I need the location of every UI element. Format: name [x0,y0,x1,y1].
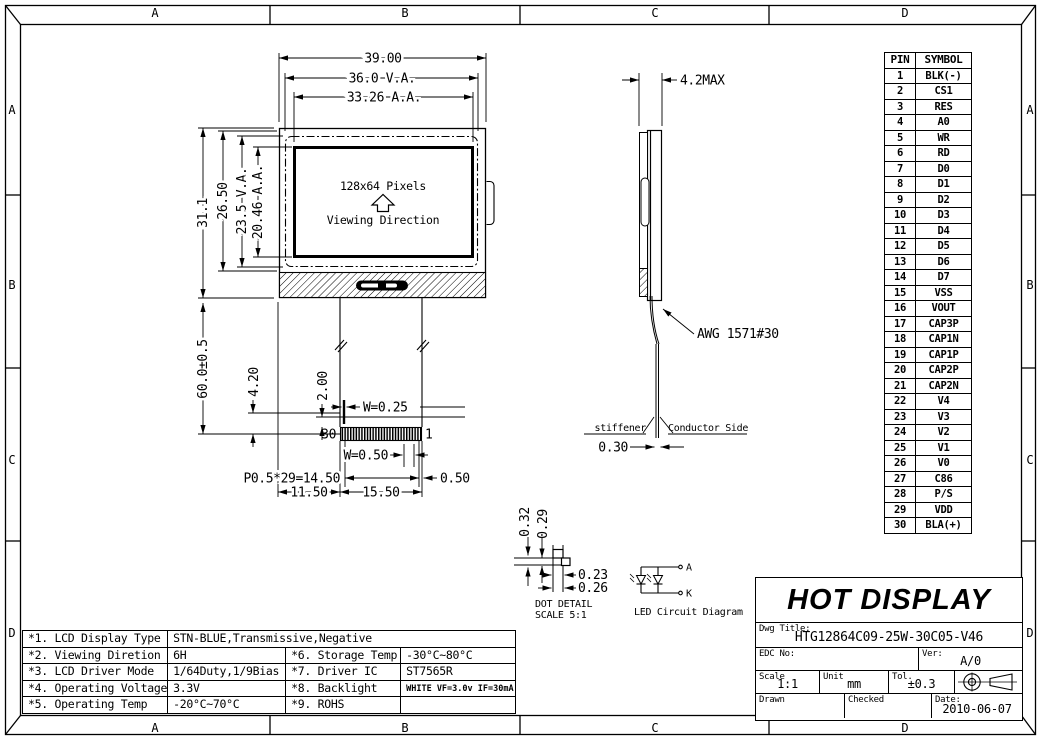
pin-cell: BLA(+) [916,518,972,534]
pin-row: 7D0 [885,161,972,177]
pin-cell: P/S [916,487,972,503]
spec-cell: *4. Operating Voltage [23,680,168,697]
zone-label: A [149,6,161,20]
pin-cell: VSS [916,285,972,301]
pin-row: 23V3 [885,409,972,425]
dot-detail [514,537,576,592]
pin-row: 13D6 [885,254,972,270]
dim-height-aa: 20.46 A.A. [251,165,266,239]
spec-cell: *5. Operating Temp [23,697,168,714]
dim-height-inner: 26.50 [216,182,231,219]
pin-row: 1BLK(-) [885,68,972,84]
spec-cell: ST7565R [401,664,516,681]
led-symbol [654,576,663,585]
pin-cell: 25 [885,440,916,456]
spec-cell: 6H [168,647,286,664]
pin-cell: CAP2N [916,378,972,394]
spec-row: *5. Operating Temp-20°C~70°C*9. ROHS [23,697,516,714]
pin-row: 25V1 [885,440,972,456]
spec-cell: -30°C~80°C [401,647,516,664]
spec-row: *3. LCD Driver Mode1/64Duty,1/9Bias*7. D… [23,664,516,681]
spec-cell: *3. LCD Driver Mode [23,664,168,681]
pin-cell: 8 [885,177,916,193]
zone-label: C [649,721,661,735]
pin-row: 26V0 [885,456,972,472]
pin-row: 29VDD [885,502,972,518]
zone-label: D [6,626,18,640]
drawing-sheet: 128x64 Pixels Viewing Direction [0,0,1041,740]
spec-table: *1. LCD Display TypeSTN-BLUE,Transmissiv… [22,630,516,714]
pin-cell: 1 [885,68,916,84]
spec-cell: 3.3V [168,680,286,697]
spec-cell: *2. Viewing Diretion [23,647,168,664]
pin-row: 15VSS [885,285,972,301]
dwg-title-value: HTG12864C09-25W-30C05-V46 [756,630,1022,645]
dim-dot-v2: 0.29 [536,509,551,539]
pin-cell: 24 [885,425,916,441]
pin-row: 12D5 [885,239,972,255]
pin-row: 20CAP2P [885,363,972,379]
company-name: HOT DISPLAY [756,578,1022,623]
pin-cell: 26 [885,456,916,472]
pin-cell: V3 [916,409,972,425]
symbol-header: SYMBOL [916,53,972,69]
dim-width-aa: 33.26 A.A. [347,91,421,106]
pin-cell: V0 [916,456,972,472]
projection-symbol-icon [955,671,1021,693]
viewing-direction-label: Viewing Direction [327,213,440,227]
dim-dot-v1: 0.32 [518,507,533,537]
pin-cell: D0 [916,161,972,177]
pin-cell: 23 [885,409,916,425]
pin-cell: RD [916,146,972,162]
pin-cell: CAP1N [916,332,972,348]
pin-cell: 2 [885,84,916,100]
pin-cell: V1 [916,440,972,456]
scale-value: 1:1 [756,677,819,691]
edc-ver-row: EDC No: Ver: A/0 [756,647,1022,670]
pin-row: 28P/S [885,487,972,503]
dim-thickness: 4.2MAX [680,74,725,89]
pin-row: 2CS1 [885,84,972,100]
pin-row: 22V4 [885,394,972,410]
pin-row: 27C86 [885,471,972,487]
pin-cell: D1 [916,177,972,193]
pin-cell: D7 [916,270,972,286]
zone-label: A [149,721,161,735]
pin-row: 9D2 [885,192,972,208]
ver-value: A/0 [919,654,1022,668]
pin-cell: D6 [916,254,972,270]
dim-height-total: 31.1 [196,198,211,228]
pin-cell: 9 [885,192,916,208]
zone-label: A [1024,103,1036,117]
pin-row: 18CAP1N [885,332,972,348]
pin-row: 11D4 [885,223,972,239]
pin-cell: CAP3P [916,316,972,332]
stiffener-label: stiffener [595,423,647,434]
edc-no-label: EDC No: [759,649,795,659]
pin-row: 19CAP1P [885,347,972,363]
pin-cell: 18 [885,332,916,348]
pin-cell: CAP1P [916,347,972,363]
led-symbol [637,576,646,585]
dot-detail-scale: SCALE 5:1 [535,610,587,621]
dim-trace-width: W=0.25 [363,401,408,416]
pin-cell: VDD [916,502,972,518]
pin-cell: 14 [885,270,916,286]
pin-table-header: PIN SYMBOL [885,53,972,69]
spec-cell: *1. LCD Display Type [23,631,168,648]
pin-row: 3RES [885,99,972,115]
pin-row: 10D3 [885,208,972,224]
dot-square [562,558,571,566]
spec-cell: -20°C~70°C [168,697,286,714]
conductor-side-label: Conductor Side [668,423,748,434]
date-value: 2010-06-07 [932,702,1022,716]
zone-label: D [1024,626,1036,640]
pin-cell: 30 [885,518,916,534]
screen-pixels-label: 128x64 Pixels [340,179,426,193]
pin-row: 24V2 [885,425,972,441]
pin-cell: A0 [916,115,972,131]
zone-label: B [399,721,411,735]
pin-cell: 11 [885,223,916,239]
dim-pitch: P0.5*29=14.50 [243,472,340,487]
zone-label: C [649,6,661,20]
pin-cell: 27 [885,471,916,487]
dim-dot-h2: 0.26 [578,581,608,596]
pin-number-30: 30 [321,428,336,443]
led-circuit [630,565,682,595]
led-anode-label: A [686,563,692,574]
pin-cell: 29 [885,502,916,518]
pin-cell: D3 [916,208,972,224]
spec-cell: *9. ROHS [286,697,401,714]
spec-cell [401,697,516,714]
pin-row: 16VOUT [885,301,972,317]
scale-unit-tol-row: Scale 1:1 Unit mm Tol. ±0.3 [756,670,1022,693]
pin-cell: 22 [885,394,916,410]
dim-tail-end: 2.00 [316,371,331,401]
pin-cell: 21 [885,378,916,394]
pin-number-1: 1 [425,428,432,443]
pin-cell: D5 [916,239,972,255]
dim-width-va: 36.0 V.A. [349,72,416,87]
dwg-title-row: Dwg Title: HTG12864C09-25W-30C05-V46 [756,622,1022,647]
dim-fpc-width: 15.50 [362,486,399,501]
dot-detail-title: DOT DETAIL [535,599,592,610]
side-view-dimensions [584,73,747,447]
pin-cell: 20 [885,363,916,379]
pin-cell: 13 [885,254,916,270]
pin-cell: CS1 [916,84,972,100]
spec-cell: *6. Storage Temp [286,647,401,664]
drawn-checked-date-row: Drawn Checked Date: 2010-06-07 [756,693,1022,718]
pin-cell: 28 [885,487,916,503]
pin-row: 17CAP3P [885,316,972,332]
pin-row: 14D7 [885,270,972,286]
dim-left-offset: 11.50 [290,486,327,501]
pin-cell: V2 [916,425,972,441]
dim-height-va: 23.5 V.A. [235,168,250,235]
wire-gauge-label: AWG 1571#30 [697,327,779,342]
zone-label: B [1024,278,1036,292]
pin-cell: 19 [885,347,916,363]
spec-row: *2. Viewing Diretion6H*6. Storage Temp-3… [23,647,516,664]
pin-cell: BLK(-) [916,68,972,84]
zone-label: B [399,6,411,20]
dim-pad-width: W=0.50 [343,449,388,464]
pin-row: 5WR [885,130,972,146]
pin-cell: 6 [885,146,916,162]
zone-label: C [6,453,18,467]
pin-table-body: 1BLK(-)2CS13RES4A05WR6RD7D08D19D210D311D… [885,68,972,533]
zone-label: D [899,721,911,735]
pin-cell: VOUT [916,301,972,317]
dim-tail-offset: 4.20 [247,367,262,397]
dim-tail-length: 60.0±0.5 [196,339,211,398]
pin-cell: 5 [885,130,916,146]
pin-cell: 3 [885,99,916,115]
drawn-label: Drawn [759,695,785,705]
pin-cell: 12 [885,239,916,255]
pin-cell: 4 [885,115,916,131]
spec-cell: STN-BLUE,Transmissive,Negative [168,631,516,648]
spec-table-body: *1. LCD Display TypeSTN-BLUE,Transmissiv… [23,631,516,714]
pin-cell: D2 [916,192,972,208]
pin-table: PIN SYMBOL 1BLK(-)2CS13RES4A05WR6RD7D08D… [884,52,972,534]
spec-row: *1. LCD Display TypeSTN-BLUE,Transmissiv… [23,631,516,648]
dim-edge-offset: 0.50 [440,472,470,487]
pin-cell: 16 [885,301,916,317]
pin-cell: C86 [916,471,972,487]
spec-cell: WHITE VF=3.0v IF=30mA [401,680,516,697]
pin-cell: 7 [885,161,916,177]
zone-label: A [6,103,18,117]
pin-row: 21CAP2N [885,378,972,394]
checked-label: Checked [848,695,884,705]
pin-cell: V4 [916,394,972,410]
pin-row: 4A0 [885,115,972,131]
fpc-contact-strip [341,428,422,441]
pin-row: 6RD [885,146,972,162]
led-cathode-label: K [686,589,692,600]
pin-row: 30BLA(+) [885,518,972,534]
pin-row: 8D1 [885,177,972,193]
zone-label: C [1024,453,1036,467]
dim-fpc-thickness: 0.30 [598,441,628,456]
pin-header: PIN [885,53,916,69]
zone-label: D [899,6,911,20]
spec-row: *4. Operating Voltage3.3V*8. BacklightWH… [23,680,516,697]
pin-cell: 10 [885,208,916,224]
led-diagram-title: LED Circuit Diagram [634,607,743,618]
side-view [640,131,662,439]
pin-cell: 17 [885,316,916,332]
dot-square [553,550,563,559]
spec-cell: 1/64Duty,1/9Bias [168,664,286,681]
spec-cell: *7. Driver IC [286,664,401,681]
pin-cell: WR [916,130,972,146]
zone-label: B [6,278,18,292]
spec-cell: *8. Backlight [286,680,401,697]
unit-value: mm [820,677,888,691]
pin-cell: D4 [916,223,972,239]
pin-cell: CAP2P [916,363,972,379]
dim-width-total: 39.00 [364,52,401,67]
pin-cell: 15 [885,285,916,301]
pin-cell: RES [916,99,972,115]
tol-value: ±0.3 [889,677,954,691]
title-block: HOT DISPLAY Dwg Title: HTG12864C09-25W-3… [755,577,1023,721]
